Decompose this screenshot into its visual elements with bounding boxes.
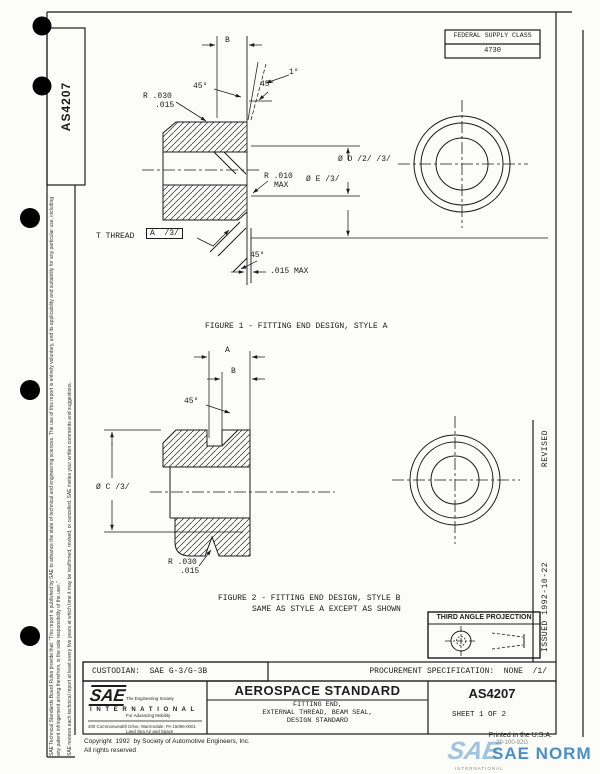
sae-norm-watermark-international: INTERNATIONAL: [455, 766, 504, 771]
fig1-radius-030-l2: .015: [155, 101, 174, 110]
fig1-angle-1: 1°: [289, 68, 299, 77]
stamp-number: 20-100-92G: [496, 740, 528, 747]
sae-address: 400 Commonwealth Drive, Warrendale, PA 1…: [88, 724, 196, 729]
fig1-angle-45-chamfer: 45°: [260, 80, 274, 89]
figure1-dimensions: [176, 36, 548, 272]
standard-type-title: AEROSPACE STANDARD: [207, 684, 428, 699]
fig1-thread-label: T THREAD: [96, 232, 134, 241]
tagline-1: The Engineering Society: [126, 696, 174, 702]
fig1-radius-030-l1: R .030: [143, 92, 172, 101]
fig1-angle-45-top: 45°: [193, 82, 207, 91]
federal-supply-class-label: FEDERAL SUPPLY CLASS: [445, 32, 540, 39]
figure2-section-linework: [150, 430, 335, 556]
document-number: AS4207: [428, 687, 556, 702]
fig1-dim-b: B: [225, 36, 230, 45]
third-angle-projection-title: THIRD ANGLE PROJECTION: [428, 614, 540, 622]
figure2-end-view: [392, 416, 520, 544]
copyright-line2: All rights reserved: [84, 747, 136, 754]
fig1-radius-010-l2: MAX: [274, 181, 288, 190]
sae-logo: SAE: [89, 685, 127, 706]
fig2-dia-c: Ø C /3/: [96, 483, 130, 492]
copyright-line1: Copyright 1992 by Society of Automotive …: [84, 738, 250, 745]
figure1-caption: FIGURE 1 - FITTING END DESIGN, STYLE A: [205, 322, 387, 331]
figure2-caption-line1: FIGURE 2 - FITTING END DESIGN, STYLE B: [218, 594, 400, 603]
standard-title-line3: DESIGN STANDARD: [207, 718, 428, 726]
figure1-section-linework: [142, 36, 262, 285]
federal-supply-class-value: 4730: [445, 47, 540, 55]
issued-revised-strip: ISSUED 1992-10-22 REVISED: [534, 422, 556, 660]
fig1-angle-45-bottom: 45°: [250, 251, 264, 260]
punch-hole: [20, 380, 40, 400]
fig2-dim-b: B: [231, 367, 236, 376]
disclaimer-text-2: SAE reviews each technical report at lea…: [67, 188, 74, 756]
page-frame: [47, 12, 583, 757]
scanned-standard-page: AS4207 ISSUED 1992-10-22 REVISED SAE Tec…: [0, 0, 600, 774]
fig2-radius-030-l2: .015: [180, 567, 199, 576]
sae-international-label: I N T E R N A T I O N A L: [90, 707, 196, 714]
custodian-field: CUSTODIAN: SAE G-3/G-3B: [92, 667, 207, 676]
disclaimer-text-1: SAE Technical Standards Board Rules prov…: [49, 188, 64, 756]
sidebar-disclaimer: SAE Technical Standards Board Rules prov…: [49, 188, 75, 756]
issued-date: ISSUED 1992-10-22: [541, 562, 550, 652]
sae-norm-watermark-text: SAE NORM: [492, 744, 592, 764]
fig2-angle-45: 45°: [184, 397, 198, 406]
fig1-thread-datum-box: A /3/: [146, 228, 183, 239]
doc-number-vertical: AS4207: [47, 28, 85, 185]
figure2-caption-line2: SAME AS STYLE A EXCEPT AS SHOWN: [252, 605, 401, 614]
sheet-number: SHEET 1 OF 2: [452, 711, 506, 720]
punch-hole: [20, 626, 40, 646]
fig1-dia-e: Ø E /3/: [306, 175, 340, 184]
fig2-dim-a: A: [225, 346, 230, 355]
figure1-end-view: [398, 100, 528, 228]
revised-label: REVISED: [541, 430, 550, 467]
fig1-radius-010-l1: R .010: [264, 172, 293, 181]
fig1-gap-015: .015 MAX: [270, 267, 308, 276]
procurement-spec-field: PROCUREMENT SPECIFICATION: NONE /1/: [285, 667, 547, 676]
drawing-linework: [0, 0, 600, 774]
fig2-radius-030-l1: R .030: [168, 558, 197, 567]
tagline-3: Land Sea Air and Space: [126, 729, 174, 735]
fig1-dia-d: Ø D /2/ /3/: [338, 155, 391, 164]
punch-hole: [20, 208, 40, 228]
